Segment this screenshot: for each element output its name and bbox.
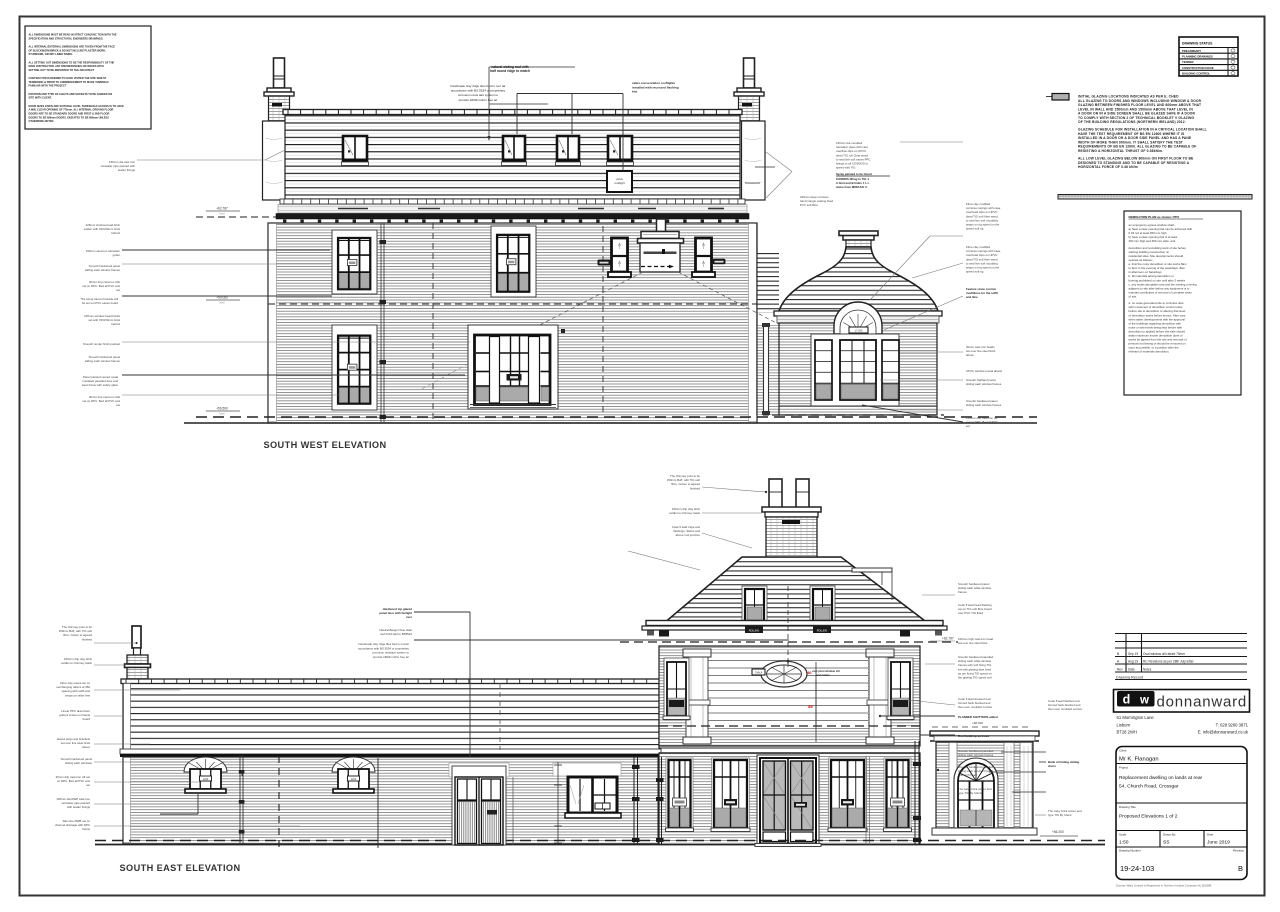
svg-text:HORIZONTAL FORCE OF 0.36 kN/m: HORIZONTAL FORCE OF 0.36 kN/m xyxy=(1078,165,1138,169)
svg-text:roof finish laid to BS5534: roof finish laid to BS5534 xyxy=(380,632,413,636)
svg-text:with arch head: with arch head xyxy=(958,773,977,777)
svg-text:OVAL4: OVAL4 xyxy=(755,672,763,675)
svg-text:above: above xyxy=(966,353,974,357)
svg-text:SPECIFICATION AND STRUCTURAL E: SPECIFICATION AND STRUCTURAL ENGINEERS D… xyxy=(29,36,104,40)
svg-text:dome from MODULE 3: dome from MODULE 3 xyxy=(836,185,867,189)
svg-text:Lisburn: Lisburn xyxy=(1117,723,1131,728)
svg-text:E: info@donnanward.co.uk: E: info@donnanward.co.uk xyxy=(1198,730,1249,735)
svg-text:Rev: Rev xyxy=(1117,668,1123,672)
svg-text:T: 028 9260 3871: T: 028 9260 3871 xyxy=(1216,723,1249,728)
svg-text:Donnan Ward Limited is Registe: Donnan Ward Limited is Registered in Nor… xyxy=(1116,884,1212,888)
svg-text:relevant of materials demoliti: relevant of materials demolition. xyxy=(1129,350,1170,354)
svg-text:Scale: Scale xyxy=(1119,833,1127,837)
svg-text:Client: Client xyxy=(1119,749,1127,753)
svg-text:FAMILIAR WITH THE PROJECT: FAMILIAR WITH THE PROJECT xyxy=(29,84,67,88)
svg-text:kits: kits xyxy=(632,90,638,94)
svg-text:+66.300: +66.300 xyxy=(1052,830,1064,834)
svg-text:ALL SETTING OUT DIMENSIONS TO: ALL SETTING OUT DIMENSIONS TO BE THE RES… xyxy=(29,60,115,64)
svg-text:speed with TIG: speed with TIG xyxy=(836,166,856,170)
svg-text:maintain certificates of remov: maintain certificates of removal of comp… xyxy=(1129,290,1193,294)
svg-text:MAIN CONTRACTOR. ANY DISCREPA: MAIN CONTRACTOR. ANY DISCREPANCIES OR IS… xyxy=(29,64,104,68)
svg-text:and centre: and centre xyxy=(816,673,830,677)
svg-text:Aug 19: Aug 19 xyxy=(1128,660,1138,664)
svg-text:set on DPC. Bed all PVC: set on DPC. Bed all PVC and xyxy=(82,399,120,403)
svg-text:Sep 19: Sep 19 xyxy=(1128,652,1138,656)
svg-text:PLANNING DRAWINGS: PLANNING DRAWINGS xyxy=(1182,55,1213,59)
svg-text:level: level xyxy=(220,213,225,216)
svg-text:+62.787: +62.787 xyxy=(216,207,228,211)
svg-text:sliding sash window frames: sliding sash window frames xyxy=(85,359,121,363)
svg-text:Date: Date xyxy=(1207,833,1213,837)
svg-text:Proposed Elevations 1 of 2: Proposed Elevations 1 of 2 xyxy=(1119,814,1178,820)
svg-text:doors: doors xyxy=(1048,764,1056,768)
svg-text:TENDERING & PRIOR TO COMMENCEM: TENDERING & PRIOR TO COMMENCEMENT TO MAK… xyxy=(29,80,110,84)
svg-text:Smooth render finish painte: Smooth render finish painted xyxy=(83,342,120,346)
svg-text:1200: 1200 xyxy=(351,778,357,781)
svg-text:set: set xyxy=(966,424,970,428)
svg-text:level: level xyxy=(220,302,225,305)
svg-text:SOUTH WEST ELEVATION: SOUTH WEST ELEVATION xyxy=(263,440,386,450)
svg-text:rooflight: rooflight xyxy=(614,181,625,185)
svg-text:CONSTRUCTION ISSUE: CONSTRUCTION ISSUE xyxy=(1182,66,1214,70)
svg-text:sliding sash window frames: sliding sash window frames xyxy=(958,753,994,757)
svg-text:behind: behind xyxy=(111,322,120,326)
svg-text:then over moulded cornice: then over moulded cornice xyxy=(958,705,992,709)
svg-text:sliding sash window frames: sliding sash window frames xyxy=(85,268,121,272)
svg-text:Drawing Number: Drawing Number xyxy=(1119,849,1141,853)
svg-text:STUDWORK, OR DRY LINED FINISH.: STUDWORK, OR DRY LINED FINISH. xyxy=(29,52,74,56)
svg-text:OF THE BUILDING REGULATIONS (N: OF THE BUILDING REGULATIONS (NORTHERN IR… xyxy=(1078,120,1186,124)
svg-text:sliding sash window frames: sliding sash window frames xyxy=(966,403,1002,407)
svg-text:SOUTH EAST ELEVATION: SOUTH EAST ELEVATION xyxy=(120,863,241,873)
svg-text:A MIN. CLEAR OPENING OF 775mm.: A MIN. CLEAR OPENING OF 775mm. ALL INTER… xyxy=(29,108,114,112)
svg-text:450 mm high and 450 mm wide: a: 450 mm high and 450 mm wide: and xyxy=(1129,239,1176,243)
svg-text:w: w xyxy=(1139,695,1149,707)
svg-text:provide 1800mm2/m free air: provide 1800mm2/m free air xyxy=(373,655,409,659)
svg-text:frames: frames xyxy=(958,590,967,594)
svg-text:over: over xyxy=(406,615,413,619)
svg-text:ALL INTERNAL/EXTERNAL DIMENSIO: ALL INTERNAL/EXTERNAL DIMENSIONS ARE TAK… xyxy=(29,45,116,49)
svg-text:set: set xyxy=(86,783,90,787)
svg-text:SS: SS xyxy=(1163,840,1170,846)
svg-text:+56.500: +56.500 xyxy=(216,407,228,411)
svg-text:Mr K. Flanagan: Mr K. Flanagan xyxy=(1119,757,1159,763)
svg-text:then over moulded cornice: then over moulded cornice xyxy=(1048,707,1082,711)
svg-text:finished: finished xyxy=(690,486,700,490)
svg-text:corrosion resis tant system: corrosion resis tant system to xyxy=(458,93,499,97)
svg-text:sliding sash window frames: sliding sash window frames xyxy=(966,382,1002,386)
svg-text:set: set xyxy=(116,288,120,292)
svg-text:DOORS ARE TO BE STANDARD DOORS: DOORS ARE TO BE STANDARD DOORS AND FIRST… xyxy=(29,112,110,116)
svg-text:Oval window cill raised 75mm: Oval window cill raised 75mm xyxy=(1143,652,1185,656)
svg-text:June 2019: June 2019 xyxy=(1207,840,1230,846)
svg-text:Date: Date xyxy=(1128,668,1135,672)
svg-text:SETTING OUT TO BE REPORTED TO: SETTING OUT TO BE REPORTED TO THE ARCHIT… xyxy=(29,68,95,72)
svg-text:DOOR SIZES GIVEN ARE SUITABLE: DOOR SIZES GIVEN ARE SUITABLE LEVEL THRE… xyxy=(29,104,124,108)
svg-text:handmade clay ridge tiles bed: handmade clay ridge tiles bed in mor tar xyxy=(450,84,505,88)
svg-text:+68.300: +68.300 xyxy=(972,721,983,725)
svg-text:17.205: 17.205 xyxy=(855,329,863,333)
svg-text:Notes: Notes xyxy=(1143,668,1152,672)
svg-text:sliding sash windows: sliding sash windows xyxy=(65,761,93,765)
svg-text:Drawing Title: Drawing Title xyxy=(1119,805,1136,809)
svg-text:and lime: and lime xyxy=(966,295,978,299)
svg-text:soldier to chimney stack: soldier to chimney stack xyxy=(61,661,92,665)
svg-text:level: level xyxy=(220,413,225,416)
svg-text:half round ridge to match: half round ridge to match xyxy=(490,69,530,73)
svg-text:RC Revisions as per 28th July: RC Revisions as per 28th July letter xyxy=(1143,660,1195,664)
svg-text:d: d xyxy=(1123,693,1131,707)
svg-text:below: below xyxy=(82,827,90,831)
svg-text:speed soft rig: speed soft rig xyxy=(966,270,984,274)
svg-text:PRELIMINARY: PRELIMINARY xyxy=(1182,49,1201,53)
svg-text:Drawing Record: Drawing Record xyxy=(1116,675,1143,679)
svg-text:46: 46 xyxy=(807,670,812,675)
svg-text:behind: behind xyxy=(111,231,120,235)
svg-text:set: set xyxy=(116,403,120,407)
svg-text:46: 46 xyxy=(808,704,813,709)
svg-text:with leader fixings: with leader fixings xyxy=(67,805,91,809)
svg-text:of site.: of site. xyxy=(1129,294,1138,298)
svg-text:CONTRACTOR IS DEEMED TO HAVE V: CONTRACTOR IS DEEMED TO HAVE VISITED THE… xyxy=(29,76,107,80)
svg-text:the glazing TIG speed so: the glazing TIG speed soft xyxy=(958,676,992,680)
svg-text:OTHERWISE NOTED: OTHERWISE NOTED xyxy=(29,119,54,123)
svg-text:B: B xyxy=(1238,864,1243,873)
svg-text:leader fixings: leader fixings xyxy=(118,168,136,172)
svg-text:OF BLOCKWORK/BRICK & DO NOT IN: OF BLOCKWORK/BRICK & DO NOT INCLUDE PLAS… xyxy=(29,48,107,52)
svg-text:PLANNED SHUTTERS added: PLANNED SHUTTERS added xyxy=(958,715,998,719)
svg-text:Revision: Revision xyxy=(1233,849,1244,853)
svg-text:19-24-103: 19-24-103 xyxy=(1120,864,1154,873)
svg-text:Replacement dwelling on lands: Replacement dwelling on lands at rear xyxy=(1119,775,1203,781)
svg-text:finished: finished xyxy=(82,637,92,641)
svg-text:TENDER: TENDER xyxy=(1182,60,1194,64)
svg-text:soldier to chimney stack: soldier to chimney stack xyxy=(669,511,700,515)
svg-text:DOORS TO BE 686mm DOORS. ENSU: DOORS TO BE 686mm DOORS. ENSUITES TO BE … xyxy=(29,115,110,119)
svg-text:over PVC TIG fitted: over PVC TIG fitted xyxy=(958,611,983,615)
svg-text:above: above xyxy=(82,745,90,749)
svg-text:Project: Project xyxy=(1119,766,1128,770)
svg-text:SITE WITH CLIENT.: SITE WITH CLIENT. xyxy=(29,96,52,100)
svg-text:above roof junction: above roof junction xyxy=(676,533,701,537)
svg-text:BT28 2WH: BT28 2WH xyxy=(1117,730,1137,735)
svg-text:BUILDING CONTROL: BUILDING CONTROL xyxy=(1182,72,1210,76)
svg-text:set on DPC. Bed all PVC: set on DPC. Bed all PVC xyxy=(966,420,998,424)
svg-text:61 Mornington Lane: 61 Mornington Lane xyxy=(1117,715,1155,720)
svg-text:accordance with BS 5534 or pro: accordance with BS 5534 or proprietary xyxy=(451,89,506,93)
svg-text:be set out PVC eaves boar: be set out PVC eaves board xyxy=(82,301,119,305)
svg-text:DEMOLITION PLAN as shown / PP2: DEMOLITION PLAN as shown / PP2 xyxy=(1129,215,1180,219)
svg-text:RESISTING A HORIZONTAL THRUST: RESISTING A HORIZONTAL THRUST OF 0.36kN/… xyxy=(1078,149,1163,153)
svg-text:+62.787: +62.787 xyxy=(942,637,954,641)
svg-text:donnanward: donnanward xyxy=(1157,694,1248,711)
svg-text:board: board xyxy=(83,717,91,721)
svg-text:wraps on rafter feet: wraps on rafter feet xyxy=(65,693,90,697)
svg-text:set on DPC. Bed all PVC: set on DPC. Bed all PVC and xyxy=(82,284,120,288)
svg-text:gutter: gutter xyxy=(113,253,120,257)
svg-text:1:50: 1:50 xyxy=(1119,840,1129,846)
svg-text:type TIG By Client: type TIG By Client xyxy=(1048,813,1072,817)
svg-text:+59.060: +59.060 xyxy=(216,296,228,300)
svg-text:installed with recessed flashi: installed with recessed flashing xyxy=(632,85,679,89)
svg-text:speed soft rig: speed soft rig xyxy=(966,227,984,231)
svg-text:POSITION AND TYPE OF LIGHTS AN: POSITION AND TYPE OF LIGHTS AND SOCKETS … xyxy=(29,92,113,96)
svg-text:Roof build-up as listed: Roof build-up as listed xyxy=(958,734,989,738)
svg-text:ROLLING: ROLLING xyxy=(749,630,760,633)
svg-text:Drawn By: Drawn By xyxy=(1163,833,1176,837)
svg-text:DRAWING STATUS: DRAWING STATUS xyxy=(1182,42,1213,46)
svg-text:54, Church Road, Crossgar: 54, Church Road, Crossgar xyxy=(1119,784,1179,790)
svg-text:type TIG By Client: type TIG By Client xyxy=(958,791,982,795)
svg-text:PVC soft fibre: PVC soft fibre xyxy=(800,203,818,207)
svg-text:steel frame with safety gl: steel frame with safety glass xyxy=(82,383,119,387)
svg-text:1200: 1200 xyxy=(203,778,209,781)
svg-text:provide 1800mm2/m free air: provide 1800mm2/m free air xyxy=(459,98,498,102)
svg-text:set over line steel lintol: set over line steel lintol xyxy=(958,641,988,645)
svg-text:Spray painted to be found: Spray painted to be found xyxy=(836,172,872,176)
svg-text:ALL DIMENSIONS MUST BE READ IN: ALL DIMENSIONS MUST BE READ IN STRICT CO… xyxy=(29,33,117,37)
svg-text:UPVC window reveal aband: UPVC window reveal aband xyxy=(966,369,1002,373)
svg-text:ROLLING: ROLLING xyxy=(817,630,828,633)
